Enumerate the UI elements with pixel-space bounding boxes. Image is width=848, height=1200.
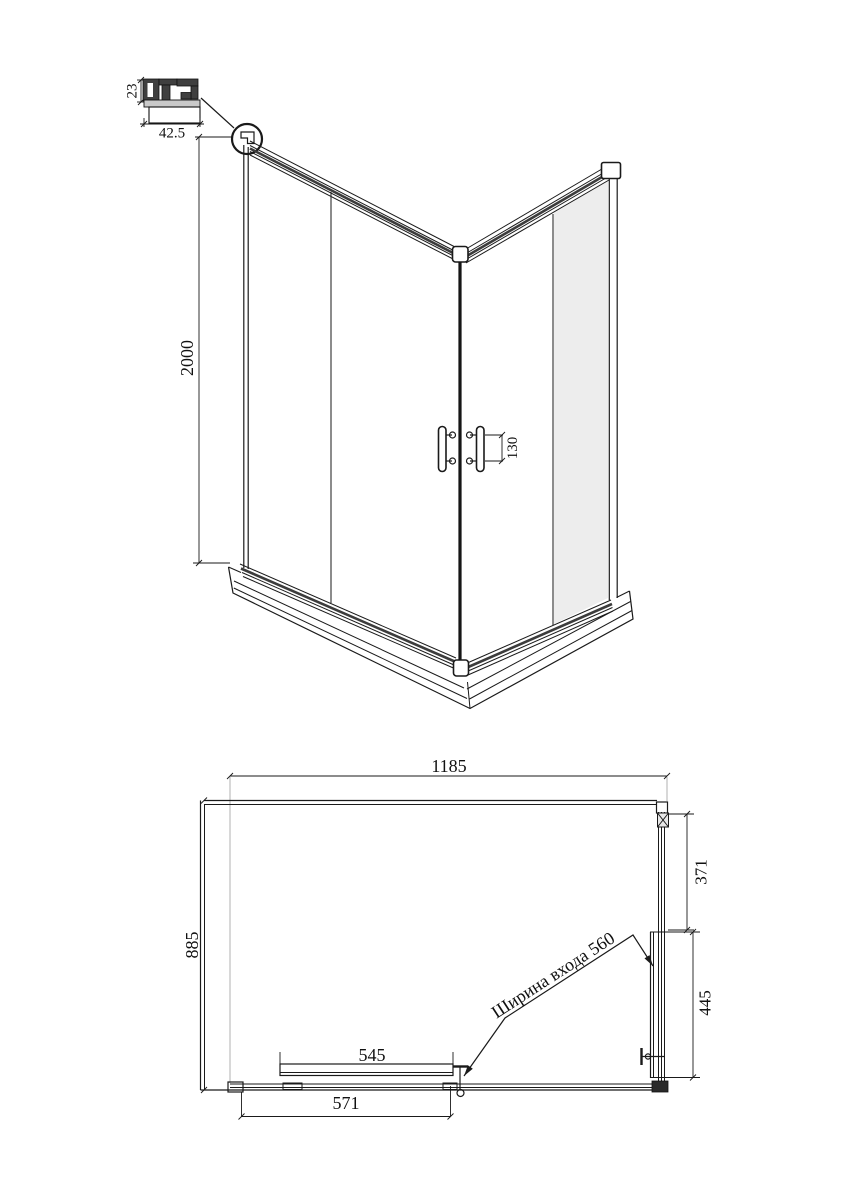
dim-885-label: 885 — [182, 932, 202, 959]
dim-885: 885 — [182, 798, 207, 1094]
door-handle-right — [467, 427, 485, 472]
entry-width-label: Ширина входа 560 — [488, 928, 618, 1022]
front-door-plan: 545 — [280, 1045, 453, 1076]
dim-130-label: 130 — [505, 437, 521, 460]
dim-2000: 2000 — [177, 134, 232, 566]
glass-tint — [554, 181, 608, 624]
dim-571: 571 — [239, 1086, 454, 1120]
shower-enclosure-drawing: 23 42.5 — [0, 0, 848, 1200]
corner-block-bottom-right — [652, 1081, 668, 1092]
dim-130: 130 — [485, 432, 521, 464]
plan-view: 1185 885 — [182, 756, 715, 1120]
corner-connector-bottom — [454, 660, 469, 676]
front-door-handle-plan — [453, 1067, 469, 1097]
corner-connector-top — [453, 247, 469, 263]
detail-leader-line — [201, 98, 234, 128]
dim-371-label: 371 — [692, 859, 711, 885]
dim-23-label: 23 — [125, 84, 141, 99]
perspective-view: 2000 — [177, 134, 633, 709]
dim-1185: 1185 — [227, 756, 670, 779]
dim-1185-label: 1185 — [431, 756, 466, 776]
dim-545-label: 545 — [359, 1045, 386, 1065]
dim-42-5-label: 42.5 — [159, 126, 185, 142]
technical-drawing-page: 23 42.5 — [0, 0, 848, 1200]
dim-445: 445 — [650, 929, 715, 1081]
dim-445-label: 445 — [696, 990, 715, 1016]
right-frame-cap — [602, 163, 621, 179]
door-handle-left — [439, 427, 456, 472]
side-door-handle-plan — [642, 1048, 665, 1065]
top-rail-left — [250, 141, 459, 262]
bottom-rail-right — [465, 600, 613, 675]
dim-2000-label: 2000 — [177, 340, 197, 376]
entry-width-callout: Ширина входа 560 — [464, 928, 653, 1076]
profile-detail: 23 42.5 — [125, 77, 263, 154]
profile-cross-section — [143, 79, 200, 123]
dim-371: 371 — [668, 811, 711, 933]
right-wall-plan — [651, 802, 669, 1092]
bottom-rail-left — [240, 564, 458, 670]
dim-571-label: 571 — [333, 1093, 360, 1113]
